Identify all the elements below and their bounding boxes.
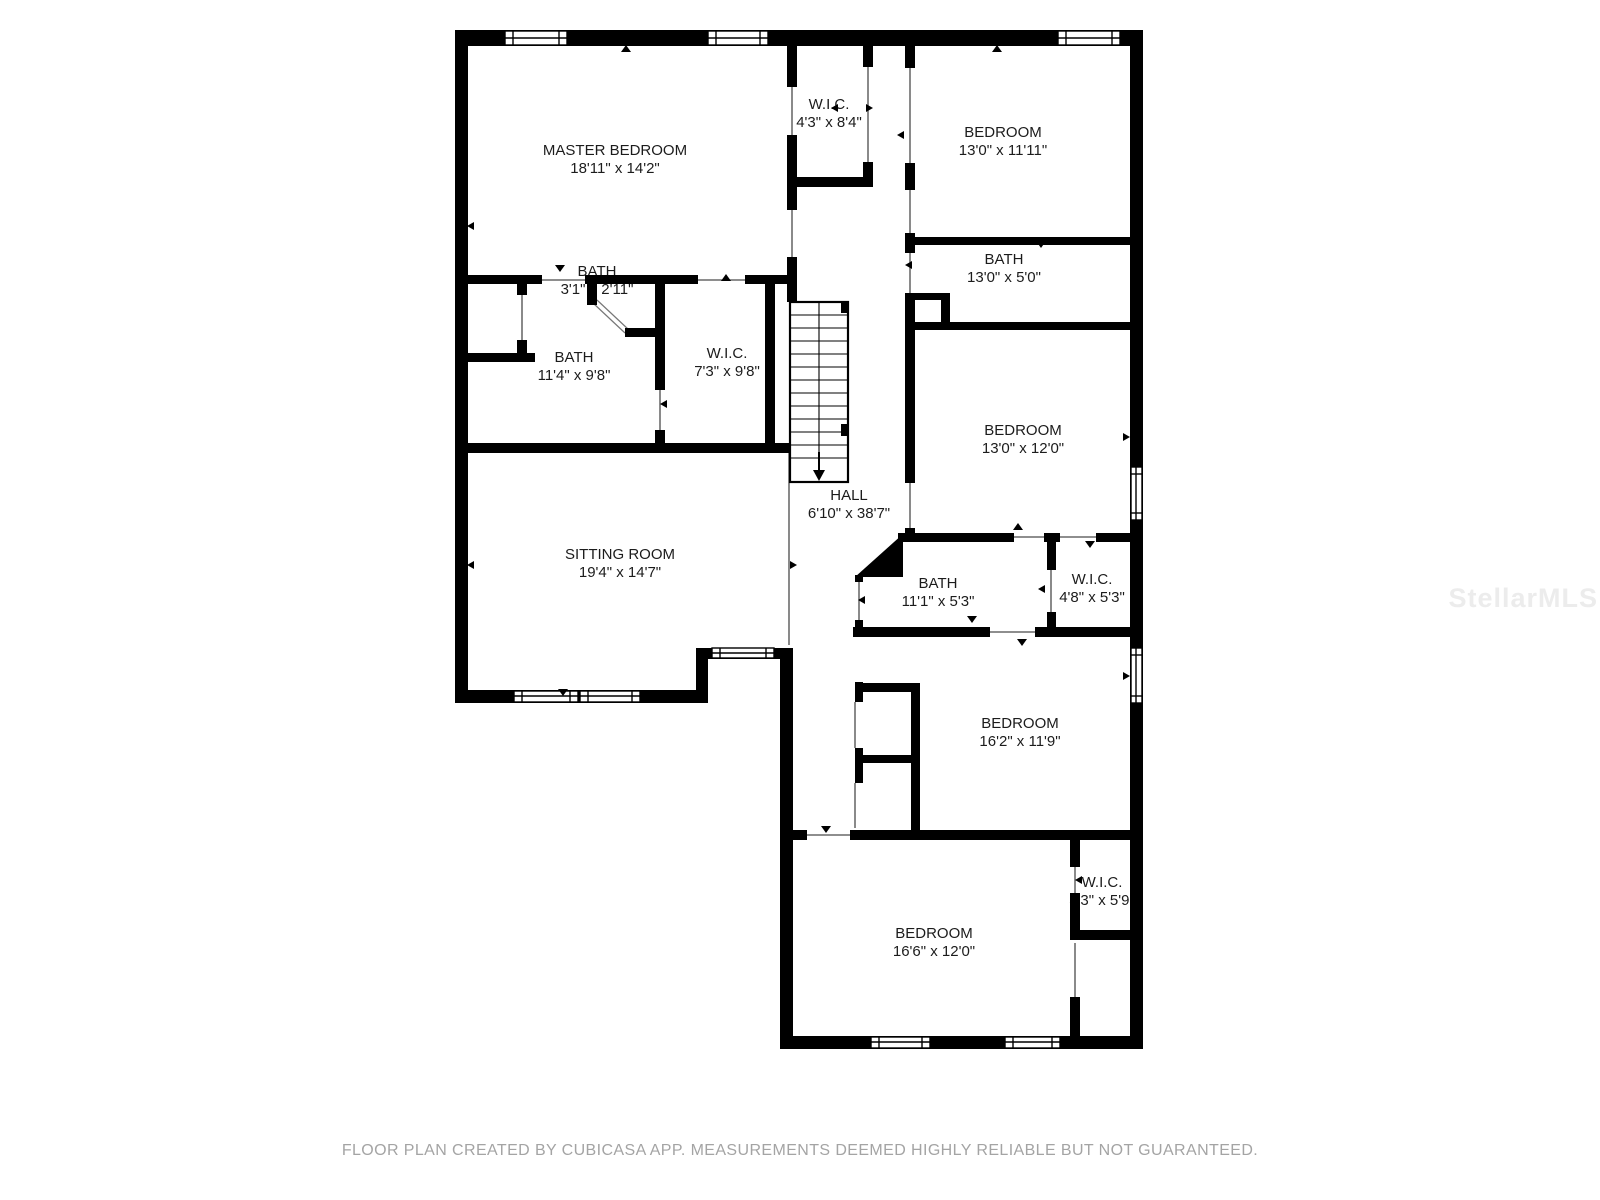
window (505, 31, 567, 45)
wall-segment (787, 135, 797, 210)
room-label: BEDROOM (981, 715, 1059, 732)
window (580, 691, 640, 702)
tick-right (866, 104, 873, 112)
wall-segment (587, 284, 597, 305)
room-dims: 6'10" x 38'7" (808, 505, 890, 522)
room-dims: 13'0" x 12'0" (982, 440, 1064, 457)
room-label: W.I.C. (809, 96, 850, 113)
wall-segment (1130, 30, 1143, 1049)
tick-down (821, 826, 831, 833)
tick-left (897, 131, 904, 139)
opening-lines (522, 67, 1096, 997)
room-label: BEDROOM (984, 422, 1062, 439)
room-label: W.I.C. (1072, 571, 1113, 588)
window (1005, 1037, 1060, 1048)
wall-segment (898, 533, 1014, 542)
room-label: BATH (919, 575, 958, 592)
floor-plan-drawing: MASTER BEDROOM 18'11" x 14'2" W.I.C. 4'3… (0, 0, 1600, 1200)
wall-segment (863, 755, 911, 763)
room-dims: 11'4" x 9'8" (538, 367, 611, 384)
walls-layer (455, 30, 1143, 1049)
window (1131, 648, 1142, 703)
wall-segment (517, 284, 527, 295)
wall-segment (787, 257, 797, 302)
footer-disclaimer: FLOOR PLAN CREATED BY CUBICASA APP. MEAS… (342, 1142, 1258, 1160)
tick-left (467, 561, 474, 569)
room-label: W.I.C. (707, 345, 748, 362)
window (871, 1037, 930, 1048)
wall-segment (905, 38, 915, 68)
stellar-mls-watermark: StellarMLS (1448, 583, 1598, 614)
wall-segment (941, 296, 950, 322)
tick-left (467, 222, 474, 230)
wall-segment (1044, 533, 1060, 542)
tick-right (790, 561, 797, 569)
tick-left (1075, 876, 1082, 884)
room-label: BATH (555, 349, 594, 366)
room-dims: 7'3" x 9'8" (694, 363, 760, 380)
tick-left (1038, 585, 1045, 593)
staircase (790, 302, 848, 482)
wall-segment (1070, 997, 1080, 1036)
room-dims: 19'4" x 14'7" (579, 564, 661, 581)
wall-segment (787, 38, 797, 87)
window (514, 691, 578, 702)
wall-segment (911, 683, 920, 830)
room-label: W.I.C. (1082, 874, 1123, 891)
wall-segment (905, 163, 915, 190)
wall-segment (780, 648, 793, 1049)
wall-segment (855, 575, 863, 582)
tick-down (1085, 541, 1095, 548)
wall-segment (455, 443, 797, 453)
wall-segment (455, 30, 468, 703)
wall-segment (787, 177, 873, 187)
tick-up (992, 45, 1002, 52)
window (708, 31, 768, 45)
stair-post (841, 424, 848, 436)
tick-down (555, 265, 565, 272)
wall-segment (655, 337, 665, 390)
room-dims: 4'8" x 5'3" (1059, 589, 1125, 606)
room-dims: 4'3" x 8'4" (796, 114, 862, 131)
tick-right (1123, 672, 1130, 680)
floor-plan-page: MASTER BEDROOM 18'11" x 14'2" W.I.C. 4'3… (0, 0, 1600, 1200)
window (1131, 467, 1142, 520)
room-label: SITTING ROOM (565, 546, 675, 563)
stair-post (841, 302, 848, 313)
room-label: MASTER BEDROOM (543, 142, 687, 159)
room-label: BEDROOM (964, 124, 1042, 141)
wall-segment (905, 330, 915, 483)
wall-segment (863, 38, 873, 67)
wall-segment (467, 353, 535, 362)
wall-segment (793, 830, 807, 840)
tick-down (1017, 639, 1027, 646)
wall-segment (1070, 893, 1080, 933)
window (712, 648, 774, 658)
tick-left (660, 400, 667, 408)
tick-up (1013, 523, 1023, 530)
wall-segment (855, 748, 863, 783)
wall-segment (585, 275, 698, 284)
room-dims: 16'6" x 12'0" (893, 943, 975, 960)
wall-segment (1047, 541, 1056, 570)
tick-up (621, 45, 631, 52)
door-swing (593, 300, 629, 333)
window (1058, 31, 1120, 45)
room-label: HALL (830, 487, 868, 504)
wall-segment (855, 534, 903, 577)
room-label: BATH (985, 251, 1024, 268)
tick-right (1123, 433, 1130, 441)
room-dims: 11'1" x 5'3" (902, 593, 975, 610)
room-dims: 13'0" x 11'11" (959, 142, 1047, 159)
wall-segment (915, 237, 1130, 245)
tick-down (967, 616, 977, 623)
wall-segment (1070, 840, 1080, 867)
wall-segment (780, 1036, 1143, 1049)
wall-segment (1035, 627, 1143, 637)
wall-segment (905, 322, 1130, 330)
room-dims: 18'11" x 14'2" (570, 160, 660, 177)
wall-segment (850, 830, 1130, 840)
wall-segment (1096, 533, 1130, 542)
wall-segment (765, 284, 775, 443)
wall-segment (855, 682, 863, 702)
room-dims: 13'0" x 5'0" (967, 269, 1041, 286)
wall-segment (517, 340, 527, 353)
tick-left (905, 261, 912, 269)
tick-up (721, 274, 731, 281)
wall-segment (455, 275, 542, 284)
room-label: BEDROOM (895, 925, 973, 942)
room-dims: 16'2" x 11'9" (979, 733, 1060, 750)
wall-segment (905, 233, 915, 253)
wall-segment (853, 627, 990, 637)
wall-segment (696, 648, 708, 703)
